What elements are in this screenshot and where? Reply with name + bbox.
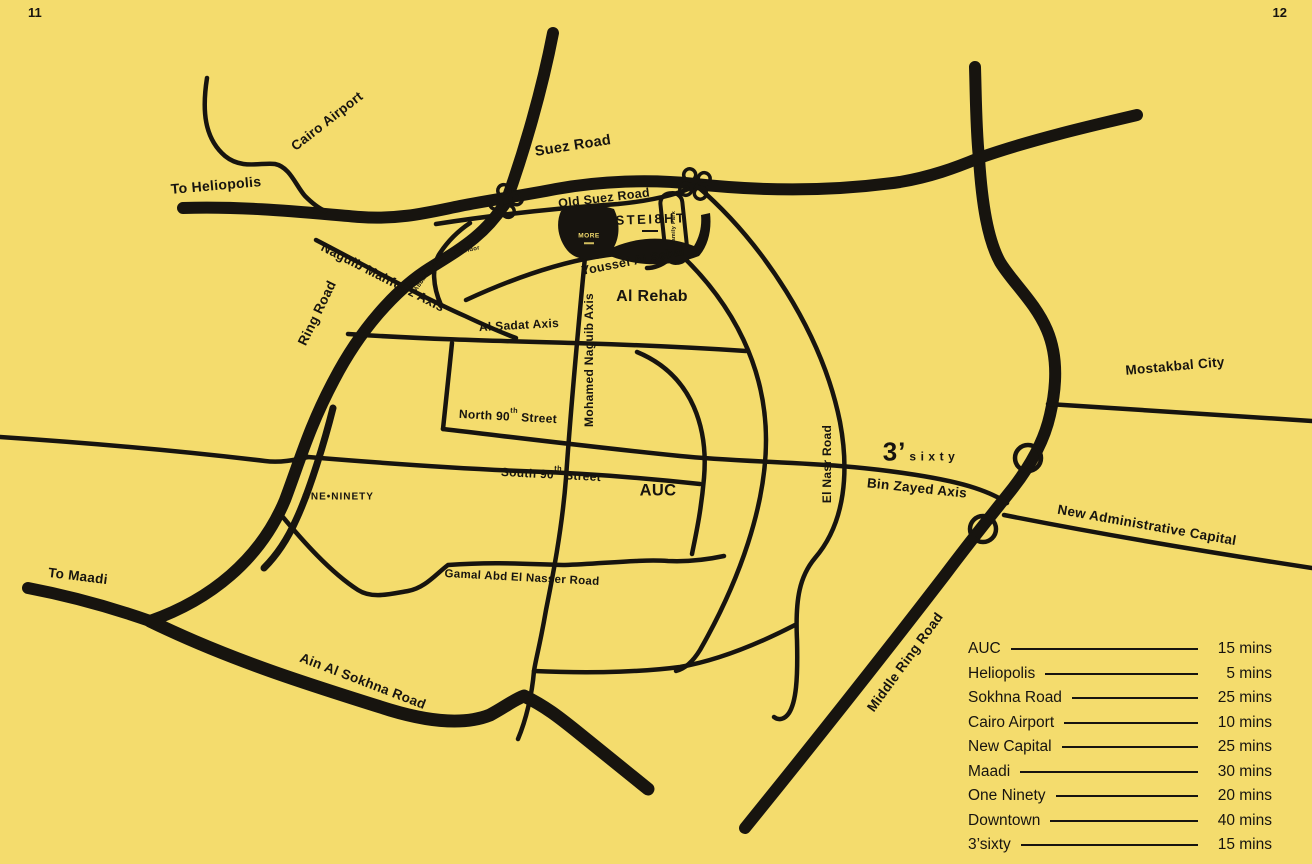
- legend-dash-line: [1021, 844, 1198, 846]
- road-one-ninety-spur: [264, 408, 333, 568]
- legend-row-heliopolis: Heliopolis 5 mins: [968, 665, 1272, 683]
- legend-dash-line: [1050, 820, 1198, 822]
- legend-label: AUC: [968, 640, 1001, 658]
- legend-row-cairo-airport: Cairo Airport 10 mins: [968, 714, 1272, 732]
- legend-time: 15 mins: [1206, 640, 1272, 658]
- page-number-left: 11: [28, 5, 42, 20]
- legend-row-sokhna-road: Sokhna Road 25 mins: [968, 689, 1272, 707]
- legend-dash-line: [1064, 722, 1198, 724]
- legend-label: New Capital: [968, 738, 1052, 756]
- travel-time-legend: AUC 15 mins Heliopolis 5 mins Sokhna Roa…: [968, 640, 1272, 854]
- road-gamal-abd-el-nasser: [282, 516, 724, 595]
- legend-time: 5 mins: [1206, 665, 1272, 683]
- legend-dash-line: [1072, 697, 1198, 699]
- legend-label: Heliopolis: [968, 665, 1035, 683]
- legend-time: 15 mins: [1206, 836, 1272, 854]
- road-west-access: [0, 437, 308, 462]
- more-logo-submark: [584, 242, 594, 244]
- legend-row-maadi: Maadi 30 mins: [968, 763, 1272, 781]
- steight-logo-submark: [642, 230, 658, 232]
- label-el-nasr-road: El Nasr Road: [820, 425, 834, 503]
- legend-label: One Ninety: [968, 787, 1046, 805]
- label-auc: AUC: [640, 482, 677, 501]
- road-ain-al-sokhna: [150, 621, 648, 789]
- label-family-park: Family Park: [671, 211, 677, 245]
- brochure-map-page: 11 12 Cairo Airport To Heliopolis Suez R…: [0, 0, 1312, 864]
- legend-label: Downtown: [968, 812, 1040, 830]
- legend-row-new-capital: New Capital 25 mins: [968, 738, 1272, 756]
- legend-label: Sokhna Road: [968, 689, 1062, 707]
- legend-dash-line: [1056, 795, 1198, 797]
- three-sixty-logo-numeral: 3’: [883, 437, 907, 467]
- legend-row-auc: AUC 15 mins: [968, 640, 1272, 658]
- legend-dash-line: [1045, 673, 1198, 675]
- label-mohamed-naguib-axis: Mohamed Naguib Axis: [582, 293, 596, 427]
- legend-row-downtown: Downtown 40 mins: [968, 812, 1272, 830]
- legend-row-one-ninety: One Ninety 20 mins: [968, 787, 1272, 805]
- legend-row-three-sixty: 3’sixty 15 mins: [968, 836, 1272, 854]
- three-sixty-logo-word: sixty: [909, 450, 959, 464]
- legend-dash-line: [1020, 771, 1198, 773]
- road-gamal-south-branch: [534, 625, 795, 672]
- legend-time: 30 mins: [1206, 763, 1272, 781]
- legend-dash-line: [1062, 746, 1198, 748]
- legend-dash-line: [1011, 648, 1198, 650]
- legend-label: Maadi: [968, 763, 1010, 781]
- legend-time: 20 mins: [1206, 787, 1272, 805]
- legend-time: 40 mins: [1206, 812, 1272, 830]
- legend-time: 10 mins: [1206, 714, 1272, 732]
- legend-label: Cairo Airport: [968, 714, 1054, 732]
- label-one-ninety: ONE•NINETY: [302, 492, 374, 503]
- legend-label: 3’sixty: [968, 836, 1011, 854]
- road-sadat-connector: [443, 343, 452, 429]
- road-al-sadat: [348, 334, 746, 351]
- more-logo: MORE: [578, 233, 600, 240]
- road-mostakbal-city: [1048, 404, 1312, 421]
- legend-time: 25 mins: [1206, 689, 1272, 707]
- road-to-maadi: [28, 588, 150, 621]
- label-al-rehab: Al Rehab: [616, 288, 688, 306]
- legend-time: 25 mins: [1206, 738, 1272, 756]
- three-sixty-logo: 3’sixty: [883, 437, 960, 468]
- page-number-right: 12: [1273, 5, 1287, 20]
